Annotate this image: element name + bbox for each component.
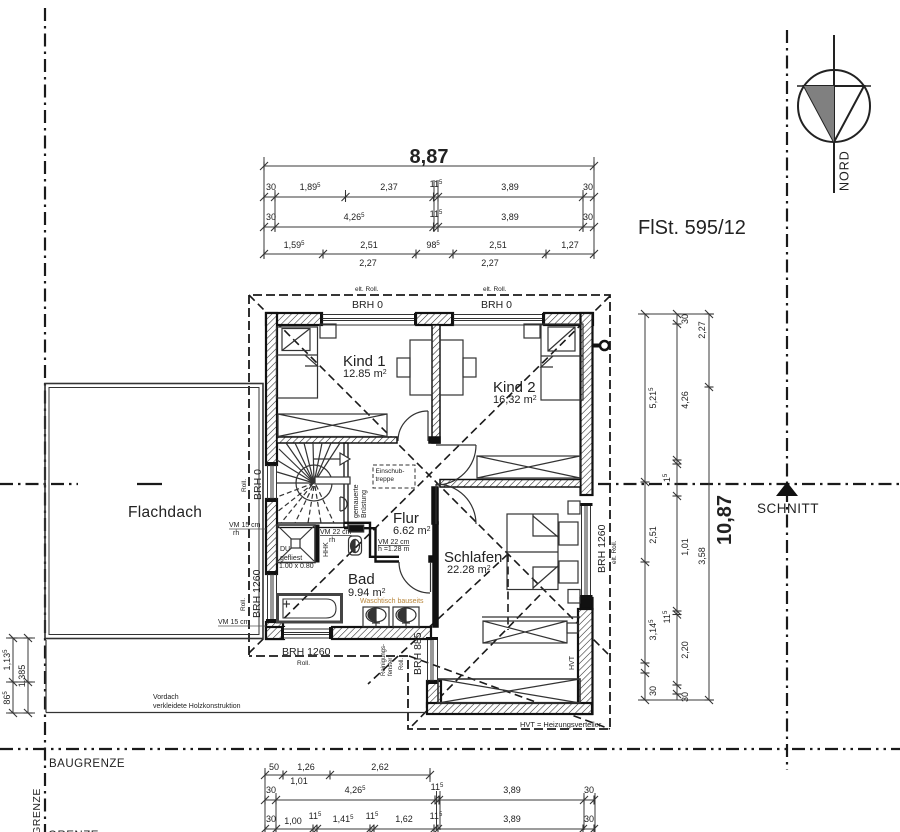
svg-text:4,26: 4,26 — [680, 391, 690, 409]
svg-text:rh: rh — [233, 530, 239, 537]
svg-text:2,51: 2,51 — [648, 526, 658, 544]
svg-text:30: 30 — [266, 785, 276, 795]
svg-text:Roll.: Roll. — [240, 598, 247, 611]
svg-text:VM 15 cm: VM 15 cm — [218, 619, 250, 626]
svg-text:16,32 m2: 16,32 m2 — [493, 394, 537, 406]
svg-text:6.62 m2: 6.62 m2 — [393, 525, 431, 537]
svg-text:2,51: 2,51 — [360, 240, 378, 250]
svg-text:h =1.28 m: h =1.28 m — [378, 546, 409, 553]
svg-text:gemauerte: gemauerte — [353, 484, 360, 518]
svg-text:3,58: 3,58 — [697, 547, 707, 565]
svg-text:1,00: 1,00 — [284, 816, 302, 826]
svg-text:1,01: 1,01 — [290, 776, 308, 786]
svg-text:30: 30 — [266, 212, 276, 222]
svg-text:BAUGRENZE: BAUGRENZE — [31, 788, 43, 832]
svg-text:3,89: 3,89 — [503, 814, 521, 824]
svg-text:BRH 1260: BRH 1260 — [282, 646, 331, 658]
svg-text:verkleidete Holzkonstruktion: verkleidete Holzkonstruktion — [153, 703, 241, 710]
svg-text:Reinigungs-: Reinigungs- — [381, 644, 387, 676]
svg-text:3,89: 3,89 — [503, 785, 521, 795]
svg-text:rh: rh — [329, 537, 335, 544]
svg-text:elt. Roll.: elt. Roll. — [483, 286, 507, 293]
svg-text:30: 30 — [680, 692, 690, 702]
svg-text:12.85 m2: 12.85 m2 — [343, 368, 387, 380]
svg-text:elt. Roll.: elt. Roll. — [611, 540, 618, 564]
svg-text:2,27: 2,27 — [697, 321, 707, 339]
svg-text:fenster: fenster — [388, 658, 394, 676]
svg-text:2,51: 2,51 — [489, 240, 507, 250]
svg-text:HHK: HHK — [323, 542, 330, 557]
svg-text:1.00 x 0.80: 1.00 x 0.80 — [279, 563, 314, 570]
svg-text:Bad: Bad — [348, 571, 375, 588]
svg-text:SCHNITT: SCHNITT — [757, 501, 819, 516]
svg-text:8,87: 8,87 — [410, 146, 449, 168]
svg-text:elt. Roll.: elt. Roll. — [355, 286, 379, 293]
svg-text:BRH 0: BRH 0 — [352, 299, 383, 311]
svg-text:30: 30 — [583, 182, 593, 192]
svg-text:treppe: treppe — [376, 476, 395, 483]
svg-text:Vordach: Vordach — [153, 694, 179, 701]
svg-text:HVT: HVT — [569, 655, 576, 670]
svg-text:30: 30 — [266, 182, 276, 192]
svg-text:Waschtisch bauseits: Waschtisch bauseits — [360, 598, 424, 605]
svg-text:VM 22 cm: VM 22 cm — [378, 539, 410, 546]
svg-text:1,26: 1,26 — [297, 762, 315, 772]
svg-text:2,27: 2,27 — [481, 258, 499, 268]
svg-text:1.385: 1.385 — [17, 665, 27, 688]
svg-text:NORD: NORD — [838, 150, 852, 191]
svg-text:BRH 0: BRH 0 — [481, 299, 512, 311]
svg-text:50: 50 — [269, 762, 279, 772]
svg-text:22.28 m2: 22.28 m2 — [447, 564, 491, 576]
svg-text:BRH 885: BRH 885 — [412, 632, 424, 675]
svg-text:3,89: 3,89 — [501, 182, 519, 192]
svg-text:30: 30 — [584, 814, 594, 824]
svg-text:30: 30 — [680, 314, 690, 324]
svg-text:Brüstung: Brüstung — [361, 490, 368, 518]
svg-text:1,27: 1,27 — [561, 240, 579, 250]
svg-text:Roll.: Roll. — [399, 658, 405, 670]
svg-text:2,27: 2,27 — [359, 258, 377, 268]
svg-text:2,37: 2,37 — [380, 182, 398, 192]
svg-text:30: 30 — [584, 785, 594, 795]
svg-text:Roll.: Roll. — [297, 660, 310, 667]
svg-text:30: 30 — [648, 686, 658, 696]
svg-text:1,01: 1,01 — [680, 538, 690, 556]
svg-text:2,62: 2,62 — [371, 762, 389, 772]
svg-text:30: 30 — [266, 814, 276, 824]
svg-text:VM 22 cm: VM 22 cm — [320, 529, 352, 536]
svg-text:FlSt. 595/12: FlSt. 595/12 — [638, 217, 746, 239]
svg-text:HVT = Heizungsverteiler: HVT = Heizungsverteiler — [520, 720, 602, 729]
svg-text:10,87: 10,87 — [714, 495, 736, 545]
svg-text:DU: DU — [280, 546, 290, 553]
svg-text:BAUGRENZE: BAUGRENZE — [49, 758, 125, 770]
svg-text:30: 30 — [583, 212, 593, 222]
svg-text:Flachdach: Flachdach — [128, 504, 202, 521]
svg-text:gefliest: gefliest — [280, 555, 302, 562]
svg-text:Roll.: Roll. — [241, 479, 248, 492]
svg-text:BRH 1260: BRH 1260 — [596, 524, 608, 573]
svg-text:1,62: 1,62 — [395, 814, 413, 824]
svg-text:VM 15 cm: VM 15 cm — [229, 522, 261, 529]
svg-text:2,20: 2,20 — [680, 641, 690, 659]
svg-text:BRH 1260: BRH 1260 — [251, 569, 263, 618]
svg-text:BRH 0: BRH 0 — [252, 469, 264, 500]
svg-text:Einschub-: Einschub- — [376, 468, 405, 475]
svg-text:3,89: 3,89 — [501, 212, 519, 222]
